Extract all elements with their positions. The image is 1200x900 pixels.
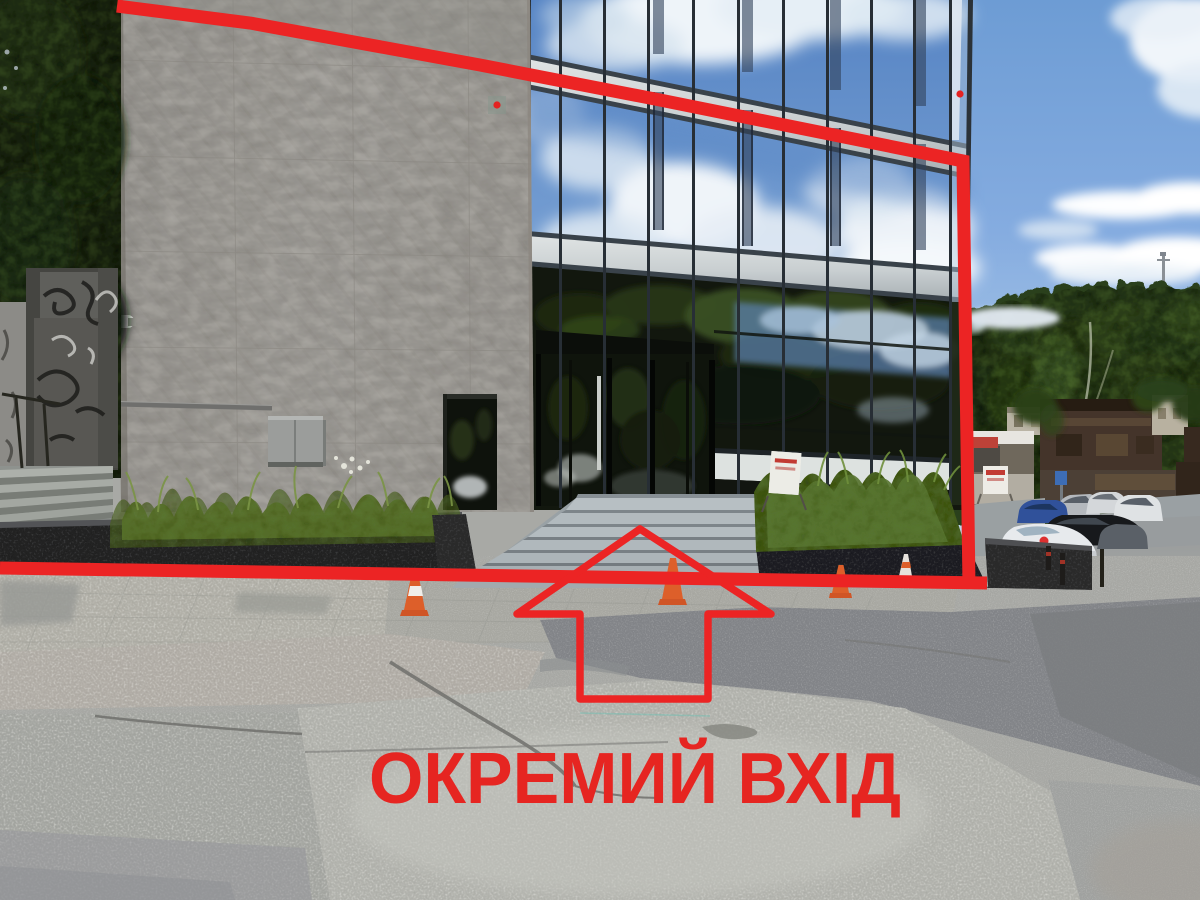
svg-text:ОКРЕМИЙ ВХІД: ОКРЕМИЙ ВХІД xyxy=(369,737,901,819)
